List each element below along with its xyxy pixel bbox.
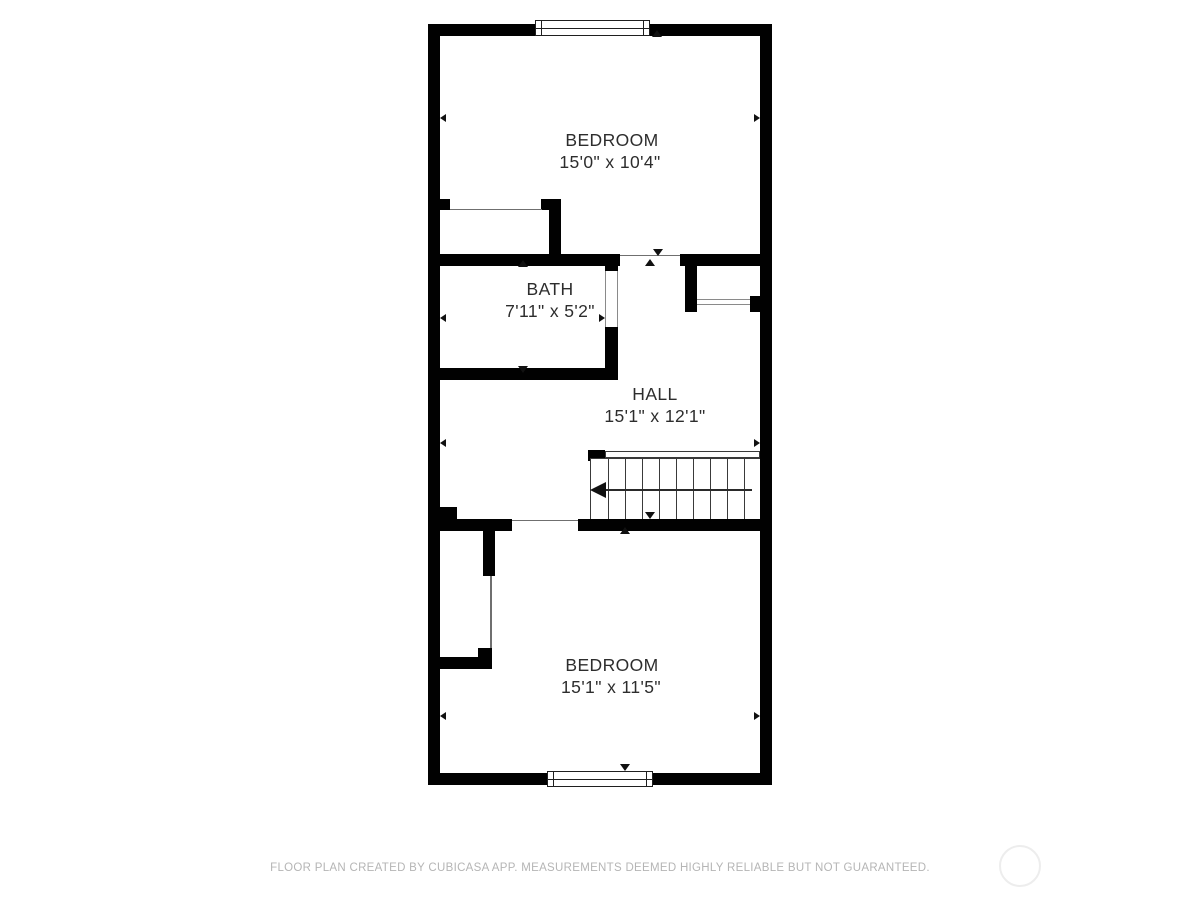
wall-bottom-exterior-b	[653, 773, 772, 785]
room-label-bath: BATH	[527, 279, 574, 300]
marker-arrow-icon	[440, 439, 446, 447]
closet1-opening-line	[450, 209, 542, 210]
marker-arrow-icon	[645, 512, 655, 519]
marker-arrow-icon	[754, 712, 760, 720]
bath-door-opening	[605, 271, 618, 327]
window-bottom	[547, 771, 653, 787]
wall-bottom-exterior-a	[428, 773, 547, 785]
wall-closet1-stub	[438, 199, 450, 210]
wall-top-exterior-a	[428, 24, 535, 36]
marker-arrow-icon	[754, 439, 760, 447]
hallcloset-threshold	[697, 299, 750, 305]
room-dims-hall: 15'1" x 12'1"	[604, 406, 705, 427]
marker-arrow-icon	[440, 114, 446, 122]
marker-arrow-icon	[754, 114, 760, 122]
marker-arrow-icon	[620, 764, 630, 771]
stairs-run-line	[600, 489, 752, 491]
window-glass-line	[548, 779, 652, 780]
window-frame-divider	[646, 772, 647, 786]
wall-mid-right	[578, 519, 772, 531]
window-frame-divider	[541, 21, 542, 35]
marker-arrow-icon	[440, 712, 446, 720]
window-frame-divider	[643, 21, 644, 35]
marker-arrow-icon	[599, 314, 605, 322]
wall-closet2-right	[483, 531, 495, 576]
room-dims-bath: 7'11" x 5'2"	[505, 301, 595, 322]
closet2-side-line	[490, 576, 492, 650]
room-dims-bedroom-top: 15'0" x 10'4"	[559, 152, 660, 173]
wall-closet2-stub	[478, 648, 492, 669]
wall-hallcloset-left	[685, 266, 697, 312]
marker-arrow-icon	[620, 527, 630, 534]
wall-mid-left-block	[438, 507, 457, 519]
bedroom2-door-opening-line	[512, 520, 578, 521]
room-dims-bedroom-bottom: 15'1" x 11'5"	[561, 677, 661, 698]
wall-closet1-vert	[549, 199, 561, 256]
watermark-logo-icon	[999, 845, 1041, 887]
wall-hallcloset-cap	[750, 296, 760, 312]
marker-arrow-icon	[653, 249, 663, 256]
marker-arrow-icon	[645, 259, 655, 266]
marker-arrow-icon	[440, 314, 446, 322]
marker-arrow-icon	[518, 366, 528, 373]
wall-right-exterior	[760, 24, 772, 785]
marker-arrow-icon	[518, 260, 528, 267]
window-glass-line	[536, 28, 649, 29]
wall-left-exterior	[428, 24, 440, 785]
wall-bath-right-upper	[605, 254, 618, 271]
marker-arrow-icon	[652, 30, 662, 37]
wall-top-exterior-b	[650, 24, 772, 36]
floor-plan-canvas: BEDROOM 15'0" x 10'4" BATH 7'11" x 5'2" …	[0, 0, 1200, 900]
hall-door-opening-line	[620, 255, 680, 256]
stairs-direction-arrow	[590, 482, 606, 498]
stairs-top-ledge	[605, 451, 760, 458]
wall-hall-top	[680, 254, 760, 266]
room-label-bedroom-bottom: BEDROOM	[565, 655, 658, 676]
room-label-bedroom-top: BEDROOM	[565, 130, 658, 151]
room-label-hall: HALL	[632, 384, 677, 405]
window-frame-divider	[553, 772, 554, 786]
window-top	[535, 20, 650, 36]
wall-mid-left	[428, 519, 512, 531]
